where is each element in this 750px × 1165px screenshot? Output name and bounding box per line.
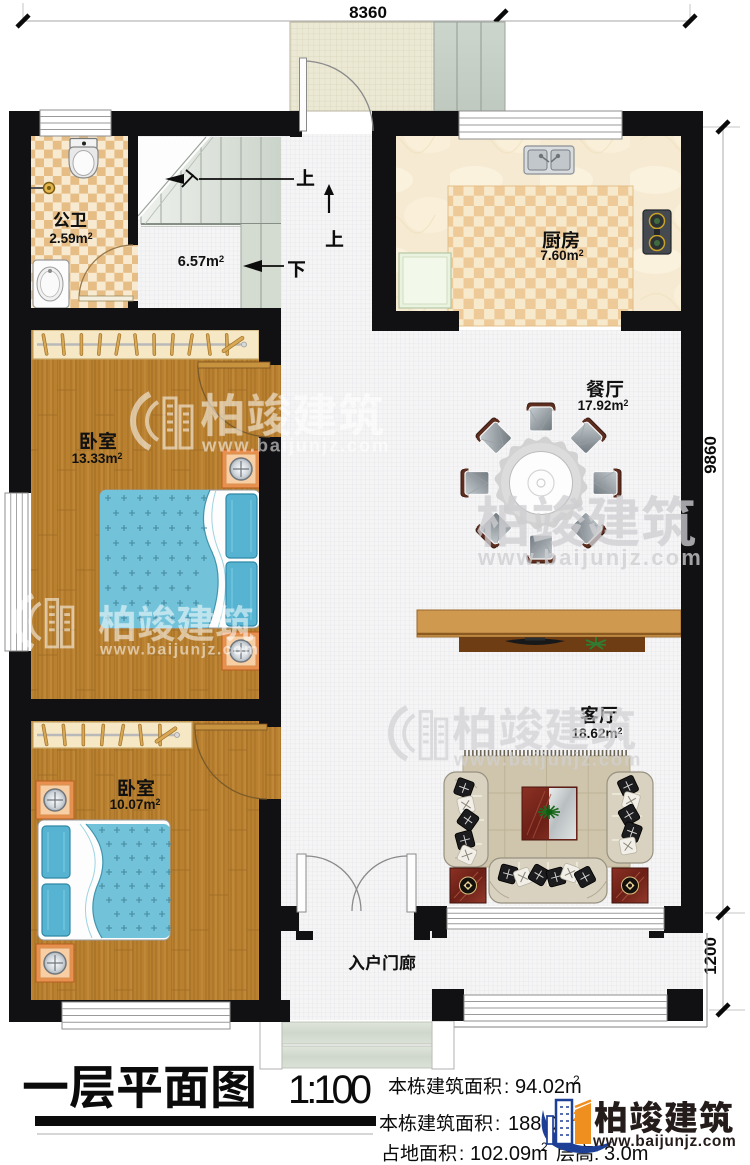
svg-text:94.02m: 94.02m [515,1076,582,1098]
svg-text:17.92m2: 17.92m2 [578,398,629,413]
svg-text:10.07m2: 10.07m2 [110,797,161,812]
svg-text:www.baijunjz.com: www.baijunjz.com [477,545,703,570]
svg-text:9860: 9860 [701,436,720,474]
svg-text:2: 2 [573,1073,580,1087]
svg-text::: : [504,1077,509,1098]
svg-text:www.baijunjz.com: www.baijunjz.com [99,641,260,658]
svg-text::: : [459,1144,464,1165]
svg-text:www.baijunjz.com: www.baijunjz.com [201,434,390,455]
svg-text:6.57m2: 6.57m2 [178,254,224,270]
svg-text:www.baijunjz.com: www.baijunjz.com [592,1133,736,1150]
svg-text::: : [495,1114,500,1135]
svg-text:1:100: 1:100 [288,1068,372,1112]
svg-text:7.60m2: 7.60m2 [540,248,583,263]
svg-text:8360: 8360 [349,3,387,22]
svg-text:102.09m: 102.09m [470,1143,548,1165]
svg-text:2.59m2: 2.59m2 [49,231,92,246]
svg-text:13.33m2: 13.33m2 [72,451,123,466]
svg-text:1200: 1200 [701,937,720,975]
svg-text:www.baijunjz.com: www.baijunjz.com [453,748,642,769]
svg-text:2: 2 [573,1108,581,1125]
